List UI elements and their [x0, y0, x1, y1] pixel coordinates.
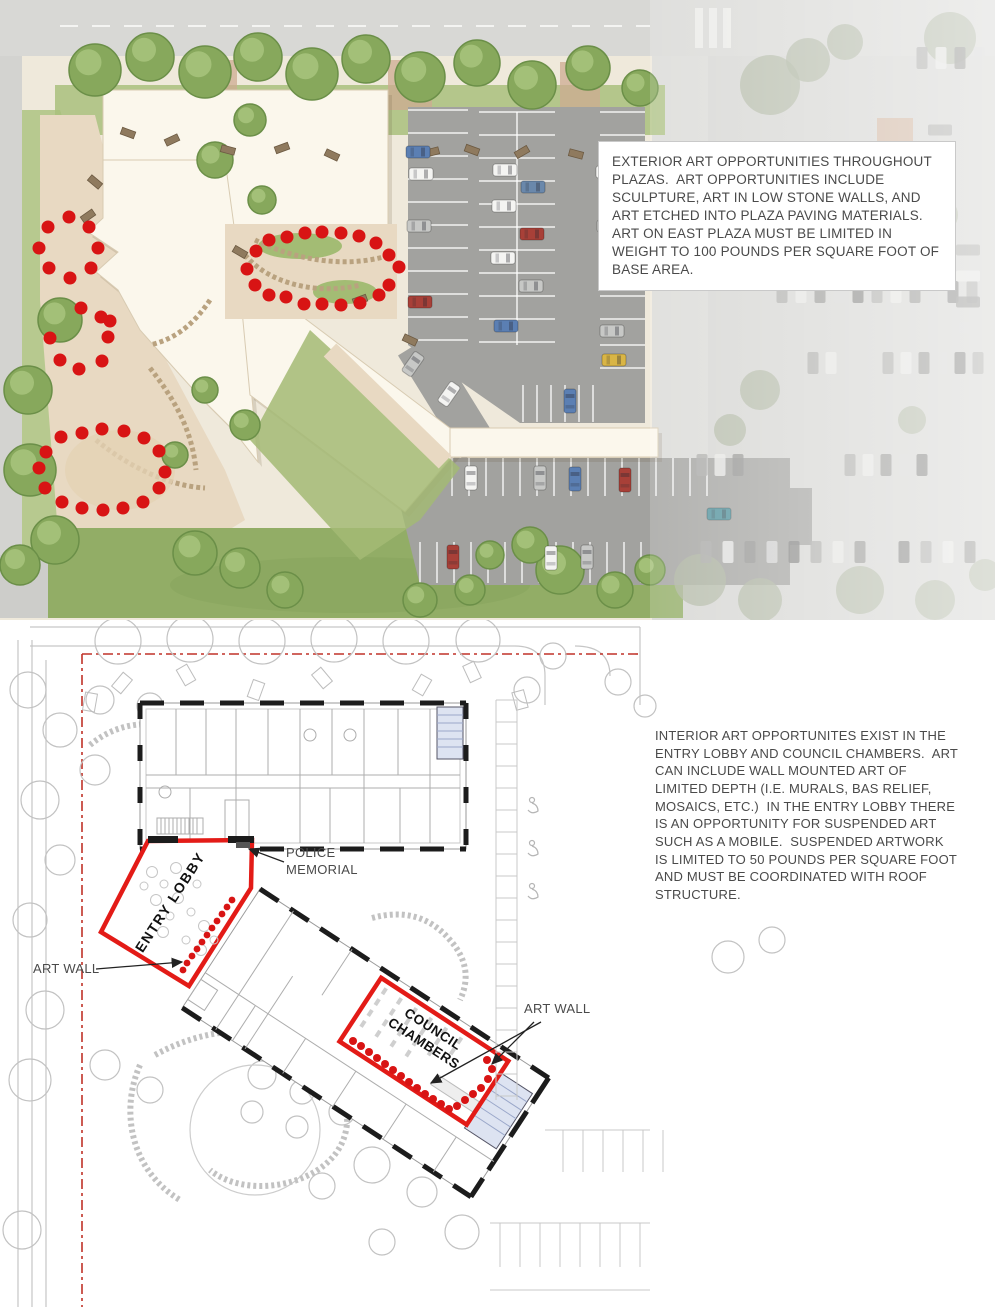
art-dot — [393, 261, 406, 274]
art-dot — [389, 1066, 397, 1074]
art-dot — [316, 226, 329, 239]
art-dot — [241, 263, 254, 276]
tree-highlight — [240, 38, 264, 62]
tree-highlight — [407, 586, 424, 603]
art-dot — [280, 291, 293, 304]
car — [600, 325, 624, 337]
art-dot — [477, 1084, 485, 1092]
car — [492, 200, 516, 212]
art-dot — [97, 504, 110, 517]
tree-highlight — [186, 51, 212, 77]
art-dot — [365, 1048, 373, 1056]
exterior-note-text: EXTERIOR ART OPPORTUNITIES THROUGHOUT PL… — [612, 154, 943, 277]
art-dot — [214, 918, 221, 925]
exterior-site-plan — [0, 0, 995, 620]
car — [569, 467, 581, 491]
tree-highlight — [76, 49, 102, 75]
art-dot — [40, 446, 53, 459]
art-dot — [373, 289, 386, 302]
art-dot — [33, 462, 46, 475]
art-dot — [405, 1078, 413, 1086]
art-dot — [224, 904, 231, 911]
art-dot — [42, 221, 55, 234]
car — [494, 320, 518, 332]
photo-fade-overlay — [650, 0, 995, 620]
art-dot — [469, 1090, 477, 1098]
car — [545, 546, 557, 570]
west-street — [0, 56, 22, 618]
car — [407, 220, 431, 232]
car — [519, 280, 543, 292]
art-dot — [335, 299, 348, 312]
tree-highlight — [165, 445, 178, 458]
tree-highlight — [293, 53, 319, 79]
art-dot — [381, 1060, 389, 1068]
tree-highlight — [602, 576, 620, 594]
art-dot — [383, 249, 396, 262]
art-dot — [117, 502, 130, 515]
art-dot — [373, 1054, 381, 1062]
car — [564, 389, 576, 413]
tree-highlight — [272, 576, 290, 594]
art-dot — [484, 1075, 492, 1083]
tree-highlight — [348, 40, 372, 64]
art-dot — [104, 315, 117, 328]
north-wing — [140, 703, 466, 849]
art-dot — [349, 1037, 357, 1045]
tree-highlight — [459, 578, 474, 593]
tree-highlight — [234, 413, 249, 428]
art-dot — [209, 925, 216, 932]
car — [447, 545, 459, 569]
art-dot — [96, 423, 109, 436]
art-dot — [39, 482, 52, 495]
car — [408, 296, 432, 308]
art-dot — [249, 279, 262, 292]
art-wall-label-right: ART WALL — [524, 1001, 590, 1016]
art-dot — [335, 227, 348, 240]
art-dot — [488, 1065, 496, 1073]
document-page: EXTERIOR ART OPPORTUNITIES THROUGHOUT PL… — [0, 0, 995, 1307]
art-dot — [153, 445, 166, 458]
tree-highlight — [514, 66, 538, 90]
art-dot — [397, 1072, 405, 1080]
art-dot — [76, 427, 89, 440]
car — [521, 181, 545, 193]
car — [493, 164, 517, 176]
art-dot — [180, 967, 187, 974]
art-dot — [75, 302, 88, 315]
art-dot — [229, 897, 236, 904]
car — [520, 228, 544, 240]
art-dot — [137, 496, 150, 509]
art-dot — [199, 939, 206, 946]
car — [581, 545, 593, 569]
car — [534, 466, 546, 490]
art-dot — [43, 262, 56, 275]
tree-highlight — [5, 549, 25, 569]
tree-highlight — [202, 146, 220, 164]
art-dot — [204, 932, 211, 939]
tree-highlight — [238, 107, 254, 123]
tree-highlight — [37, 521, 61, 545]
tree-highlight — [480, 544, 494, 558]
art-dot — [421, 1090, 429, 1098]
art-dot — [159, 466, 172, 479]
car — [619, 468, 631, 492]
art-dot — [56, 496, 69, 509]
art-dot — [453, 1102, 461, 1110]
tree-highlight — [11, 449, 37, 475]
tree-highlight — [10, 371, 34, 395]
art-dot — [76, 502, 89, 515]
car — [602, 354, 626, 366]
art-dot — [118, 425, 131, 438]
police-memorial-marker — [236, 842, 250, 848]
art-dot — [184, 960, 191, 967]
tree-highlight — [517, 531, 535, 549]
police-memorial-label: POLICE MEMORIAL — [286, 845, 381, 879]
car — [406, 146, 430, 158]
interior-floor-plan — [0, 620, 995, 1307]
art-dot — [102, 331, 115, 344]
art-dot — [189, 953, 196, 960]
art-dot — [92, 242, 105, 255]
car — [491, 252, 515, 264]
art-dot — [370, 237, 383, 250]
tree-highlight — [460, 45, 483, 68]
art-dot — [33, 242, 46, 255]
tree-highlight — [627, 74, 645, 92]
art-dot — [64, 272, 77, 285]
art-dot — [437, 1100, 445, 1108]
art-dot — [263, 289, 276, 302]
art-dot — [298, 298, 311, 311]
tree-highlight — [132, 38, 156, 62]
tree-highlight — [572, 50, 594, 72]
art-dot — [413, 1084, 421, 1092]
art-dot — [194, 946, 201, 953]
art-dot — [353, 230, 366, 243]
art-dot — [63, 211, 76, 224]
art-dot — [219, 911, 226, 918]
art-wall-label-left: ART WALL — [33, 961, 99, 976]
art-dot — [44, 332, 57, 345]
art-dot — [55, 431, 68, 444]
tree-highlight — [401, 57, 426, 82]
art-dot — [281, 231, 294, 244]
art-dot — [383, 279, 396, 292]
tree-highlight — [252, 189, 266, 203]
art-dot — [73, 363, 86, 376]
exterior-note-box: EXTERIOR ART OPPORTUNITIES THROUGHOUT PL… — [598, 141, 956, 291]
tree-highlight — [195, 380, 208, 393]
art-dot — [54, 354, 67, 367]
art-dot — [83, 221, 96, 234]
art-dot — [299, 227, 312, 240]
art-dot — [316, 298, 329, 311]
car — [465, 466, 477, 490]
art-dot — [153, 482, 166, 495]
building-south-canopy — [450, 428, 658, 457]
art-dot — [354, 297, 367, 310]
interior-note-text: INTERIOR ART OPPORTUNITES EXIST IN THE E… — [655, 727, 960, 904]
art-dot — [85, 262, 98, 275]
art-dot — [445, 1105, 453, 1113]
tree-highlight — [179, 535, 201, 557]
art-dot — [96, 355, 109, 368]
art-dot — [250, 245, 263, 258]
garden-plaza — [65, 430, 175, 510]
art-dot — [357, 1042, 365, 1050]
tree-highlight — [225, 552, 245, 572]
art-dot — [263, 234, 276, 247]
art-dot — [461, 1096, 469, 1104]
car — [409, 168, 433, 180]
art-dot — [429, 1095, 437, 1103]
art-dot — [138, 432, 151, 445]
tree-highlight — [44, 302, 66, 324]
